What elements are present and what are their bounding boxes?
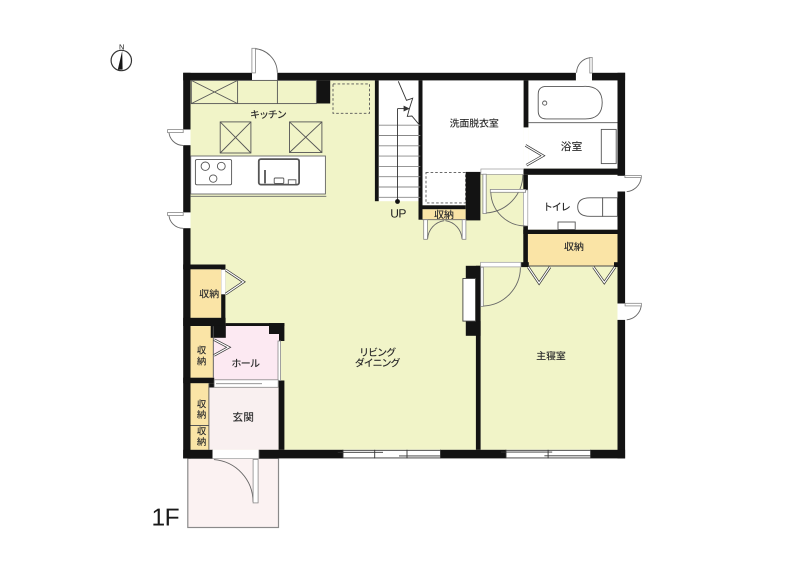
svg-text:UP: UP [390, 207, 406, 221]
svg-text:N: N [119, 42, 124, 51]
svg-text:1F: 1F [152, 505, 180, 532]
